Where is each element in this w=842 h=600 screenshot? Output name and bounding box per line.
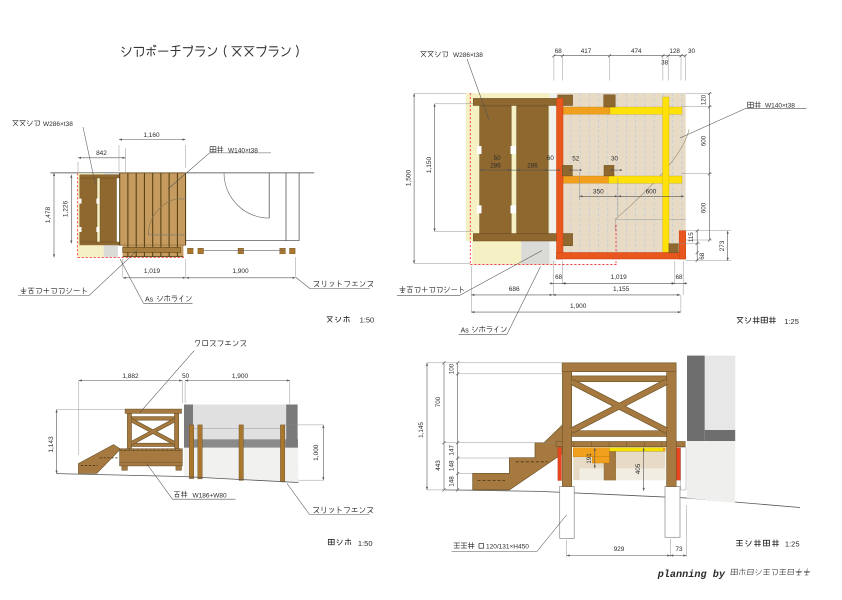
svg-text:1,500: 1,500 xyxy=(405,169,412,186)
svg-text:929: 929 xyxy=(614,546,625,553)
svg-text:1,900: 1,900 xyxy=(570,303,587,310)
svg-text:115: 115 xyxy=(688,232,695,243)
svg-text:1,019: 1,019 xyxy=(144,268,161,275)
svg-text:W186+W80: W186+W80 xyxy=(193,493,228,500)
svg-text:73: 73 xyxy=(675,546,683,553)
svg-text:1:50: 1:50 xyxy=(358,539,373,548)
svg-text:120/131×H450: 120/131×H450 xyxy=(486,544,529,551)
svg-text:148: 148 xyxy=(449,476,456,487)
svg-text:60: 60 xyxy=(547,155,555,162)
svg-text:191: 191 xyxy=(586,453,593,464)
svg-text:474: 474 xyxy=(631,48,642,55)
svg-text:1,882: 1,882 xyxy=(122,373,139,380)
svg-text:planning by: planning by xyxy=(657,569,726,581)
svg-text:147: 147 xyxy=(449,445,456,456)
svg-text:1,226: 1,226 xyxy=(63,200,70,217)
svg-text:68: 68 xyxy=(555,48,563,55)
svg-text:1,900: 1,900 xyxy=(232,268,249,275)
svg-text:1,160: 1,160 xyxy=(143,132,160,139)
svg-text:286: 286 xyxy=(490,163,501,170)
svg-text:148: 148 xyxy=(449,460,456,471)
svg-text:68: 68 xyxy=(555,274,563,281)
svg-text:W286×t38: W286×t38 xyxy=(453,52,483,59)
svg-text:686: 686 xyxy=(509,286,520,293)
svg-text:1,900: 1,900 xyxy=(232,373,249,380)
svg-text:443: 443 xyxy=(435,460,442,471)
svg-text:1:50: 1:50 xyxy=(360,315,375,324)
svg-text:128: 128 xyxy=(669,48,680,55)
svg-text:1,150: 1,150 xyxy=(426,156,433,173)
svg-text:30: 30 xyxy=(611,155,619,162)
svg-text:1:25: 1:25 xyxy=(785,540,800,549)
svg-text:350: 350 xyxy=(593,189,604,196)
svg-text:1,145: 1,145 xyxy=(418,422,425,438)
svg-text:68: 68 xyxy=(675,274,683,281)
svg-text:842: 842 xyxy=(96,150,107,157)
svg-text:38: 38 xyxy=(661,60,669,67)
svg-text:W286×t38: W286×t38 xyxy=(43,121,73,128)
svg-text:120: 120 xyxy=(700,94,707,105)
svg-text:As: As xyxy=(145,297,154,304)
svg-text:30: 30 xyxy=(688,48,696,55)
svg-text:52: 52 xyxy=(572,155,580,162)
svg-text:1,478: 1,478 xyxy=(45,206,52,223)
svg-text:68: 68 xyxy=(699,252,706,260)
svg-text:286: 286 xyxy=(527,163,538,170)
svg-text:100: 100 xyxy=(449,363,456,374)
svg-text:600: 600 xyxy=(700,135,707,146)
svg-text:1:25: 1:25 xyxy=(784,317,799,326)
svg-text:As: As xyxy=(461,327,470,334)
svg-text:600: 600 xyxy=(646,189,657,196)
svg-text:50: 50 xyxy=(182,373,190,380)
svg-text:273: 273 xyxy=(719,240,726,251)
svg-text:1,000: 1,000 xyxy=(313,444,320,461)
svg-text:1,143: 1,143 xyxy=(48,436,55,453)
svg-text:1,019: 1,019 xyxy=(610,274,627,281)
svg-text:600: 600 xyxy=(700,202,707,213)
svg-text:700: 700 xyxy=(435,396,442,407)
svg-text:417: 417 xyxy=(581,48,592,55)
svg-text:50: 50 xyxy=(494,155,502,162)
svg-text:W140×t38: W140×t38 xyxy=(228,147,258,154)
svg-text:405: 405 xyxy=(635,463,642,474)
svg-text:1,155: 1,155 xyxy=(613,286,630,293)
